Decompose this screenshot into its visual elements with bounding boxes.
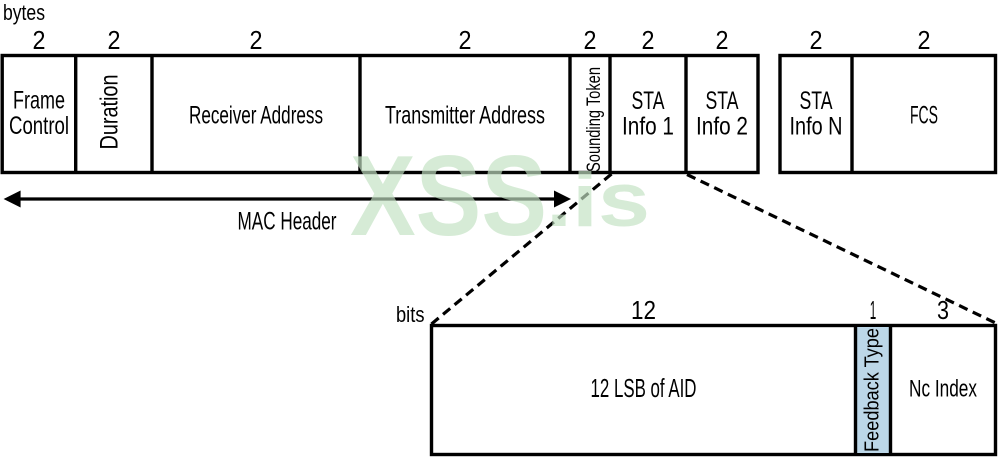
svg-text:3: 3 — [937, 295, 949, 325]
svg-text:2: 2 — [250, 25, 263, 55]
svg-text:2: 2 — [108, 25, 121, 55]
svg-text:2: 2 — [642, 25, 655, 55]
svg-text:.is: .is — [546, 158, 650, 243]
svg-text:Feedback Type: Feedback Type — [862, 328, 884, 452]
svg-text:FCS: FCS — [910, 102, 938, 130]
svg-text:STA: STA — [800, 87, 833, 115]
svg-text:STA: STA — [706, 87, 739, 115]
svg-text:2: 2 — [810, 25, 823, 55]
svg-text:bits: bits — [396, 302, 425, 327]
svg-text:2: 2 — [716, 25, 729, 55]
svg-text:STA: STA — [632, 87, 665, 115]
svg-text:Info 1: Info 1 — [622, 113, 674, 141]
svg-text:2: 2 — [584, 25, 597, 55]
svg-text:Info 2: Info 2 — [696, 113, 748, 141]
svg-text:2: 2 — [33, 25, 46, 55]
svg-text:Sounding Token: Sounding Token — [584, 67, 605, 172]
svg-text:12 LSB of AID: 12 LSB of AID — [591, 375, 697, 403]
svg-text:2: 2 — [918, 25, 931, 55]
svg-text:Nc Index: Nc Index — [909, 376, 977, 403]
svg-text:MAC Header: MAC Header — [238, 208, 337, 236]
svg-text:Transmitter Address: Transmitter Address — [385, 102, 545, 130]
svg-text:XSS: XSS — [350, 132, 547, 260]
svg-text:2: 2 — [459, 25, 472, 55]
svg-text:12: 12 — [631, 295, 656, 325]
svg-text:Info N: Info N — [790, 113, 843, 141]
svg-text:1: 1 — [870, 295, 877, 325]
svg-text:Receiver Address: Receiver Address — [189, 102, 323, 130]
svg-text:bytes: bytes — [3, 0, 45, 25]
svg-text:Frame: Frame — [13, 87, 65, 115]
svg-text:Control: Control — [9, 112, 69, 140]
svg-text:Duration: Duration — [96, 75, 124, 150]
